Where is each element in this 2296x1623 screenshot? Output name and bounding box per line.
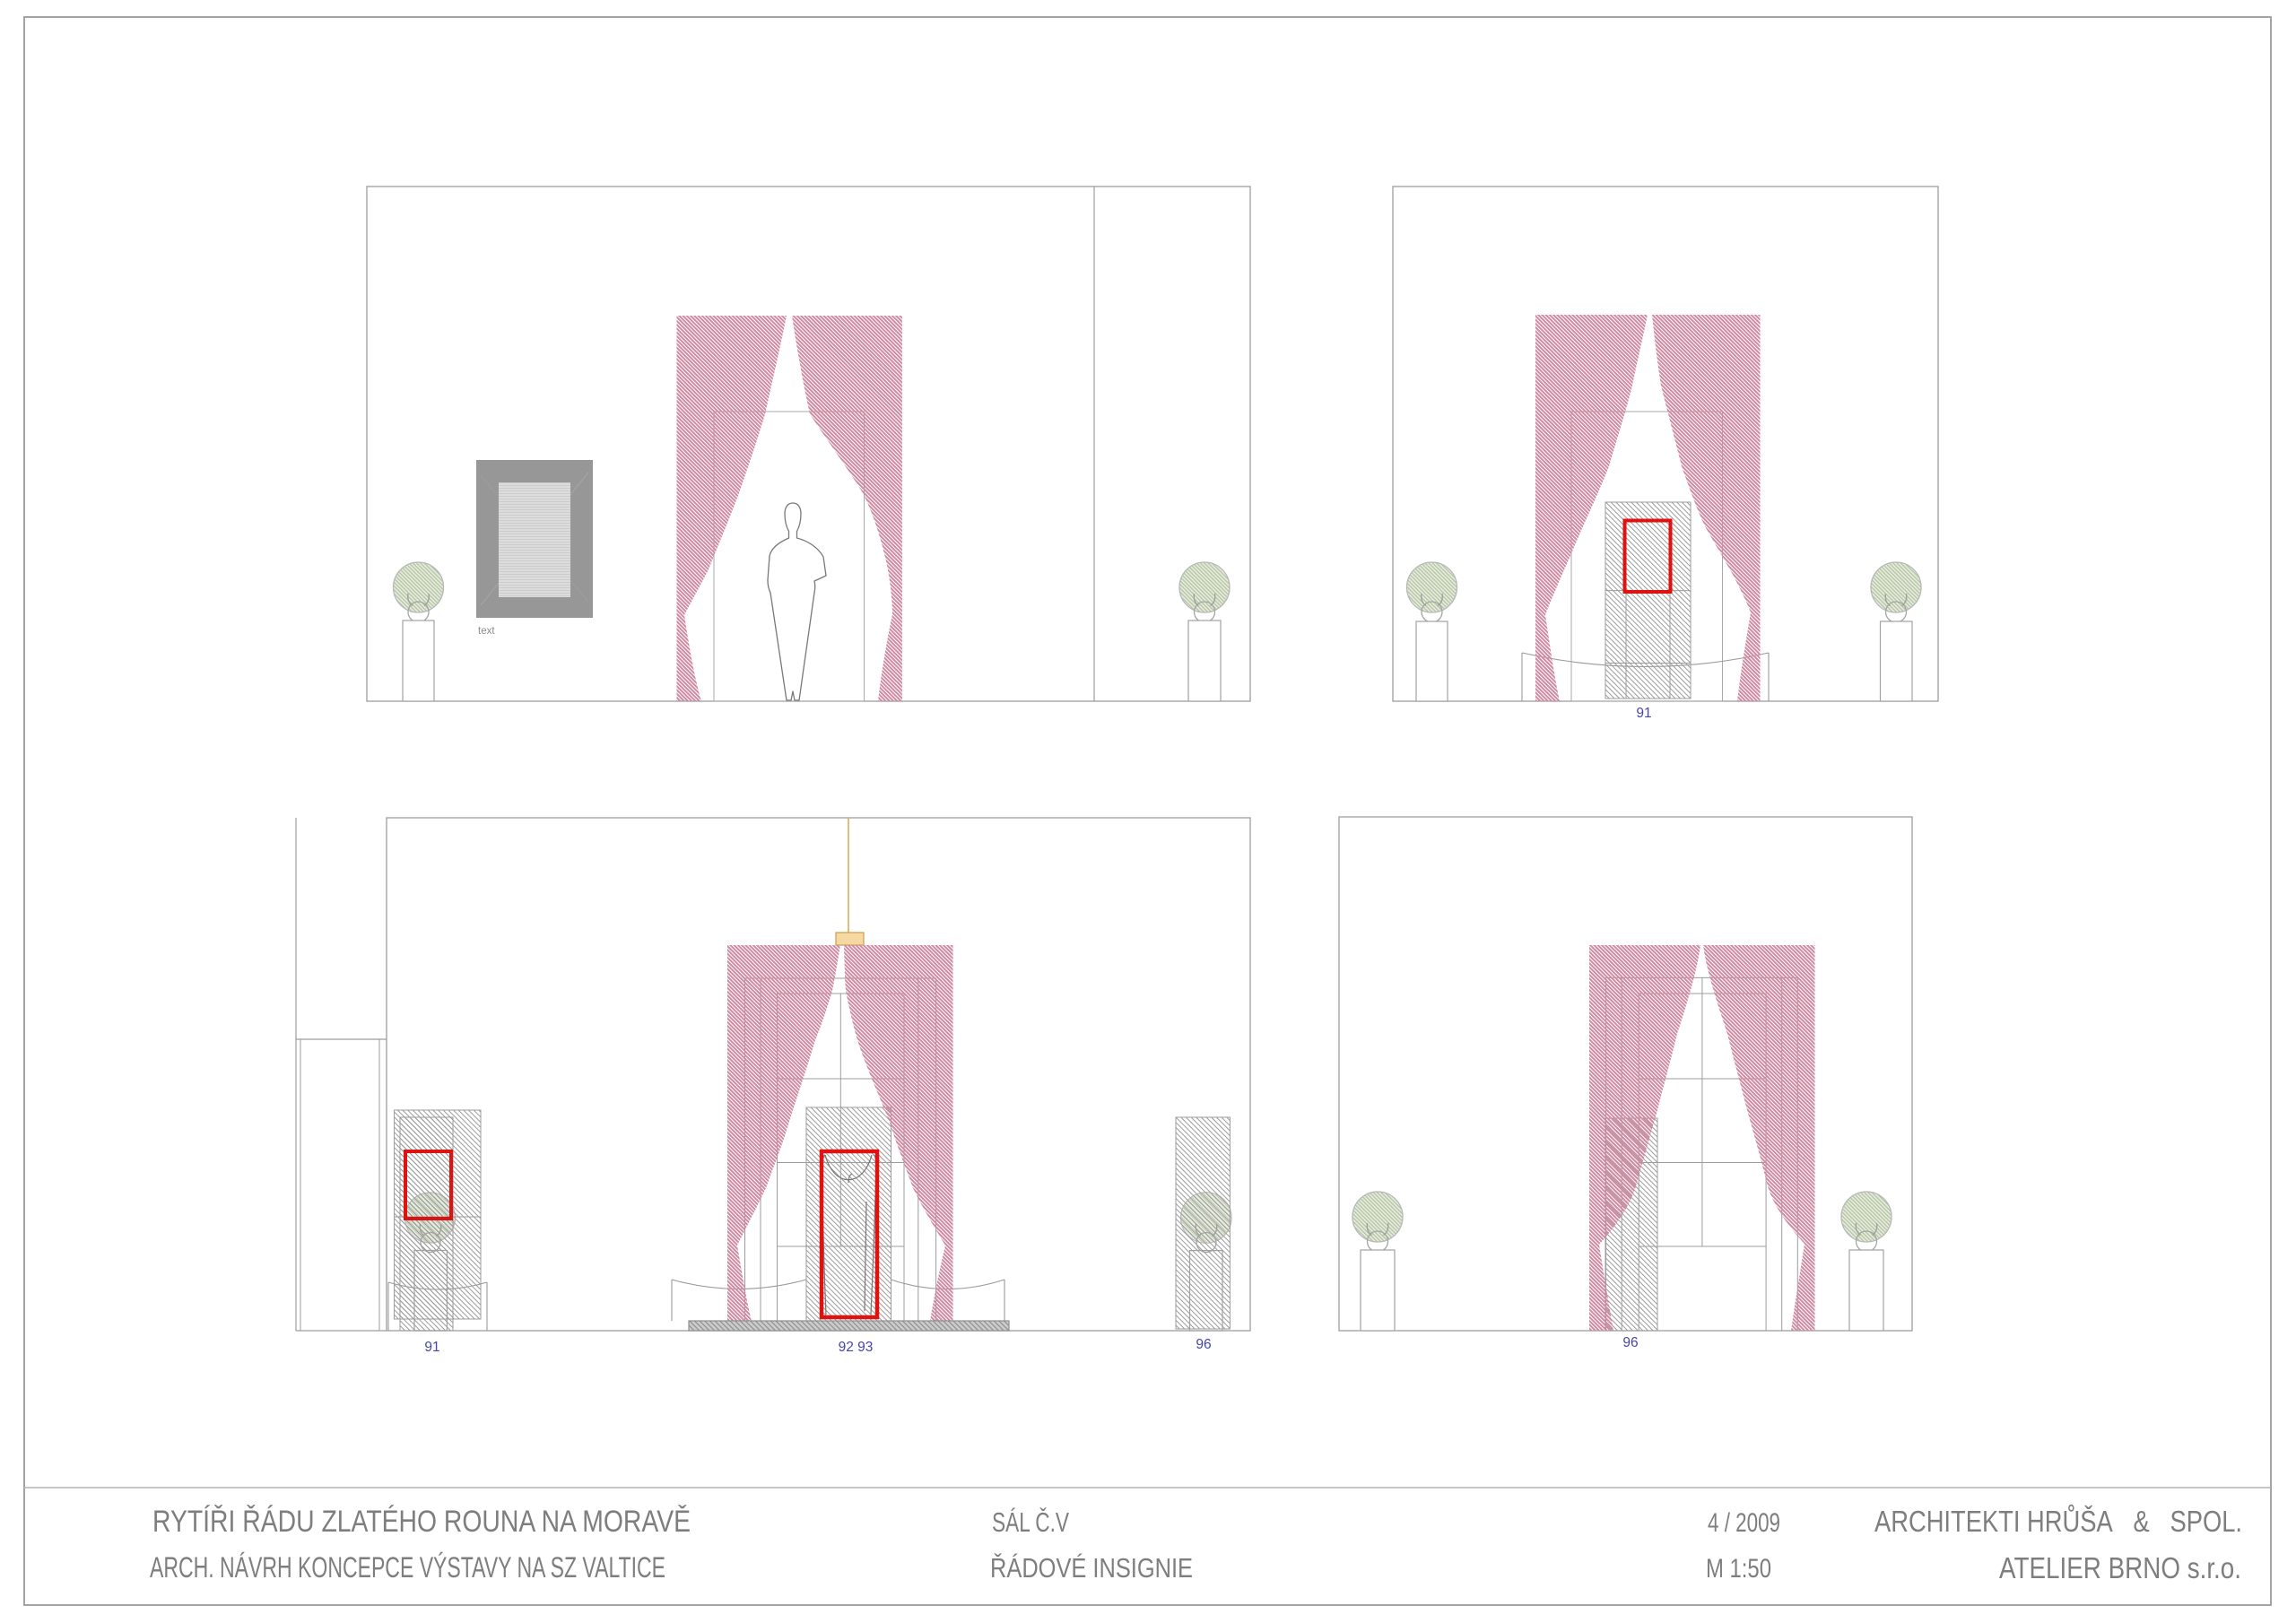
svg-text:ARCH. NÁVRH KONCEPCE VÝSTAVY N: ARCH. NÁVRH KONCEPCE VÝSTAVY NA SZ VALTI… — [150, 1551, 665, 1584]
svg-text:text: text — [478, 626, 495, 637]
svg-text:96: 96 — [1196, 1337, 1211, 1352]
svg-text:91: 91 — [424, 1340, 439, 1355]
svg-text:4 / 2009: 4 / 2009 — [1708, 1508, 1780, 1538]
svg-text:91: 91 — [1636, 706, 1651, 721]
svg-text:92 93: 92 93 — [839, 1340, 874, 1355]
svg-text:ŘÁDOVÉ INSIGNIE: ŘÁDOVÉ INSIGNIE — [990, 1552, 1193, 1584]
svg-text:RYTÍŘI ŘÁDU ZLATÉHO ROUNA NA M: RYTÍŘI ŘÁDU ZLATÉHO ROUNA NA MORAVĚ — [152, 1505, 691, 1539]
svg-text:96: 96 — [1622, 1335, 1638, 1350]
svg-text:SÁL Č.V: SÁL Č.V — [992, 1506, 1069, 1538]
svg-text:ATELIER BRNO s.r.o.: ATELIER BRNO s.r.o. — [1999, 1551, 2241, 1584]
svg-text:M 1:50: M 1:50 — [1706, 1554, 1771, 1584]
svg-text:ARCHITEKTI HRŮŠA & SPOL.: ARCHITEKTI HRŮŠA & SPOL. — [1874, 1504, 2242, 1538]
